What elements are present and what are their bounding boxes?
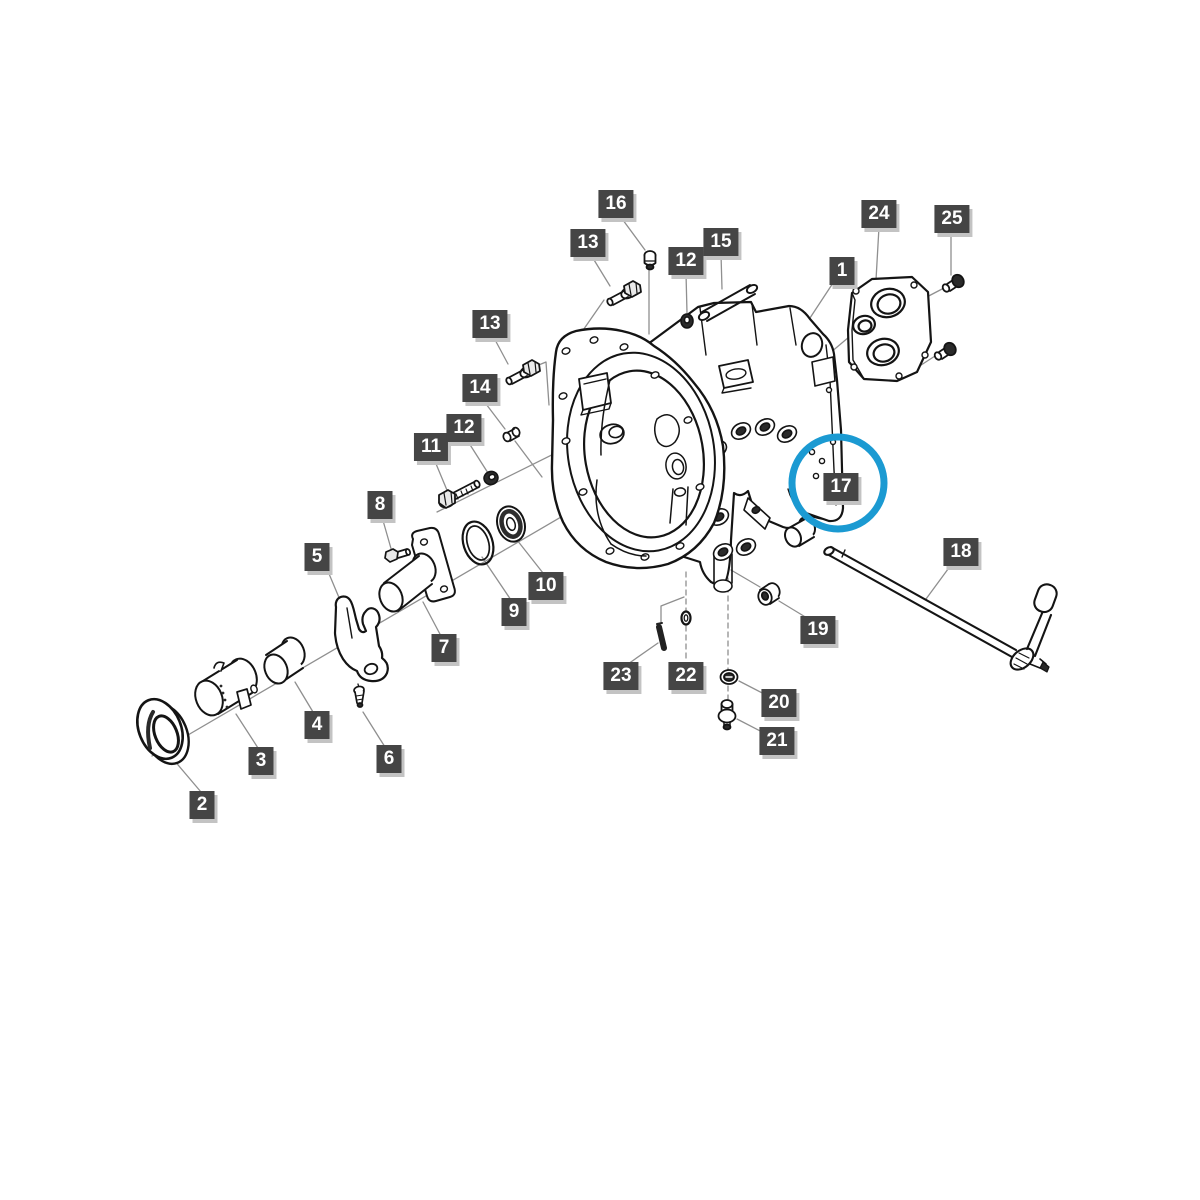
exploded-view-artwork — [0, 0, 1200, 1200]
part-23-roll-pin — [657, 623, 664, 648]
part-19-bushing — [756, 581, 782, 606]
part-22-o-ring-small — [682, 612, 691, 625]
part-3-collar — [190, 654, 262, 719]
part-13-bolt-upper — [606, 281, 641, 306]
bolt — [941, 273, 966, 293]
part-18-release-shaft-lever — [823, 546, 1059, 674]
part-2-seal-ring — [129, 692, 197, 770]
part-16-plug — [645, 251, 656, 270]
part-21-bolt — [719, 700, 736, 730]
part-25-bolts — [933, 273, 966, 361]
part-8-bolt-small — [385, 548, 411, 562]
part-9-o-ring — [457, 518, 498, 569]
parts-diagram-canvas: 1234567891011121213131415161718192021222… — [0, 0, 1200, 1200]
part-11-bolt-long — [437, 480, 481, 510]
part-13-bolt-lower — [505, 360, 540, 385]
part-12-washer-upper — [681, 314, 693, 328]
part-6-set-screw — [353, 684, 364, 707]
part-20-nut — [721, 670, 738, 684]
bolt — [933, 341, 958, 361]
boss — [734, 536, 759, 559]
part-24-cover-plate — [848, 277, 931, 381]
part-5-clutch-fork — [335, 596, 388, 681]
part-4-bushing — [260, 634, 309, 687]
part-12-nut-lower — [482, 469, 500, 486]
